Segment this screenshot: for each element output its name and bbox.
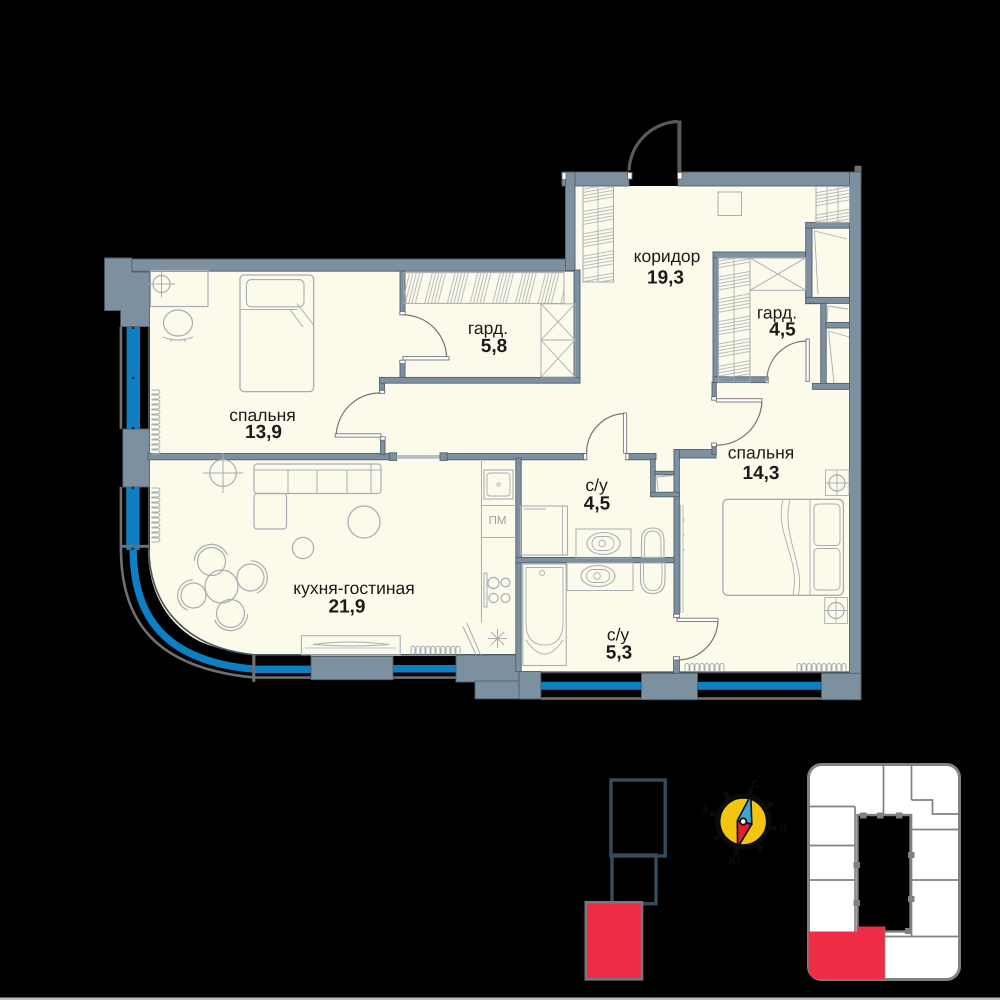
svg-text:4,5: 4,5	[769, 320, 796, 341]
svg-text:с/у: с/у	[585, 475, 608, 495]
svg-text:гард.: гард.	[468, 318, 508, 338]
svg-text:З: З	[701, 805, 708, 817]
svg-text:14,3: 14,3	[743, 463, 780, 484]
svg-text:5,3: 5,3	[606, 643, 632, 664]
svg-text:4,5: 4,5	[584, 494, 611, 515]
svg-text:ПМ: ПМ	[489, 515, 507, 527]
svg-text:С: С	[751, 779, 759, 791]
svg-text:Ю: Ю	[729, 856, 740, 868]
svg-text:кухня-гостиная: кухня-гостиная	[293, 578, 414, 598]
svg-text:13,9: 13,9	[245, 422, 282, 443]
svg-text:коридор: коридор	[634, 246, 701, 266]
svg-text:21,9: 21,9	[329, 597, 366, 618]
svg-text:В: В	[779, 824, 787, 836]
svg-text:спальня: спальня	[728, 443, 794, 463]
svg-text:5,8: 5,8	[481, 336, 507, 357]
svg-text:19,3: 19,3	[647, 268, 684, 289]
